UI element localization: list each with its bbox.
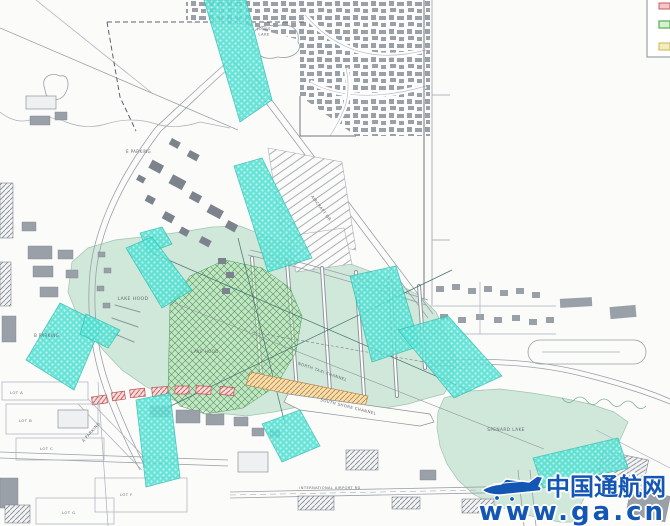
lot-c-label: LOT C bbox=[40, 446, 53, 451]
airport-rd-label: INTERNATIONAL AIRPORT RD bbox=[299, 486, 360, 490]
siteplan-canvas: JONES LAKE E PARKING B PARKING A PARKING… bbox=[0, 0, 670, 526]
legend-red-swatch bbox=[659, 3, 670, 9]
lot-b-label: LOT B bbox=[19, 418, 32, 423]
lot-g-label: LOT G bbox=[62, 510, 75, 515]
jones-lake-label-2: LAKE bbox=[258, 32, 269, 37]
lot-a-label: LOT A bbox=[10, 390, 23, 395]
lot-f-label: LOT F bbox=[120, 492, 133, 497]
legend-yellow-swatch bbox=[659, 43, 670, 50]
lake-hood-label: LAKE HOOD bbox=[117, 296, 148, 302]
jones-lake-label: JONES bbox=[256, 26, 271, 31]
legend-green-swatch bbox=[659, 21, 670, 28]
legend-box bbox=[647, 0, 670, 57]
b-parking-label: B PARKING bbox=[34, 333, 59, 338]
lake-hood-east-label: LAKE HOOD bbox=[191, 349, 218, 354]
spenard-lake-label: SPENARD LAKE bbox=[487, 427, 525, 433]
e-parking-label: E PARKING bbox=[126, 149, 151, 154]
map-drawing: JONES LAKE E PARKING B PARKING A PARKING… bbox=[0, 0, 670, 526]
